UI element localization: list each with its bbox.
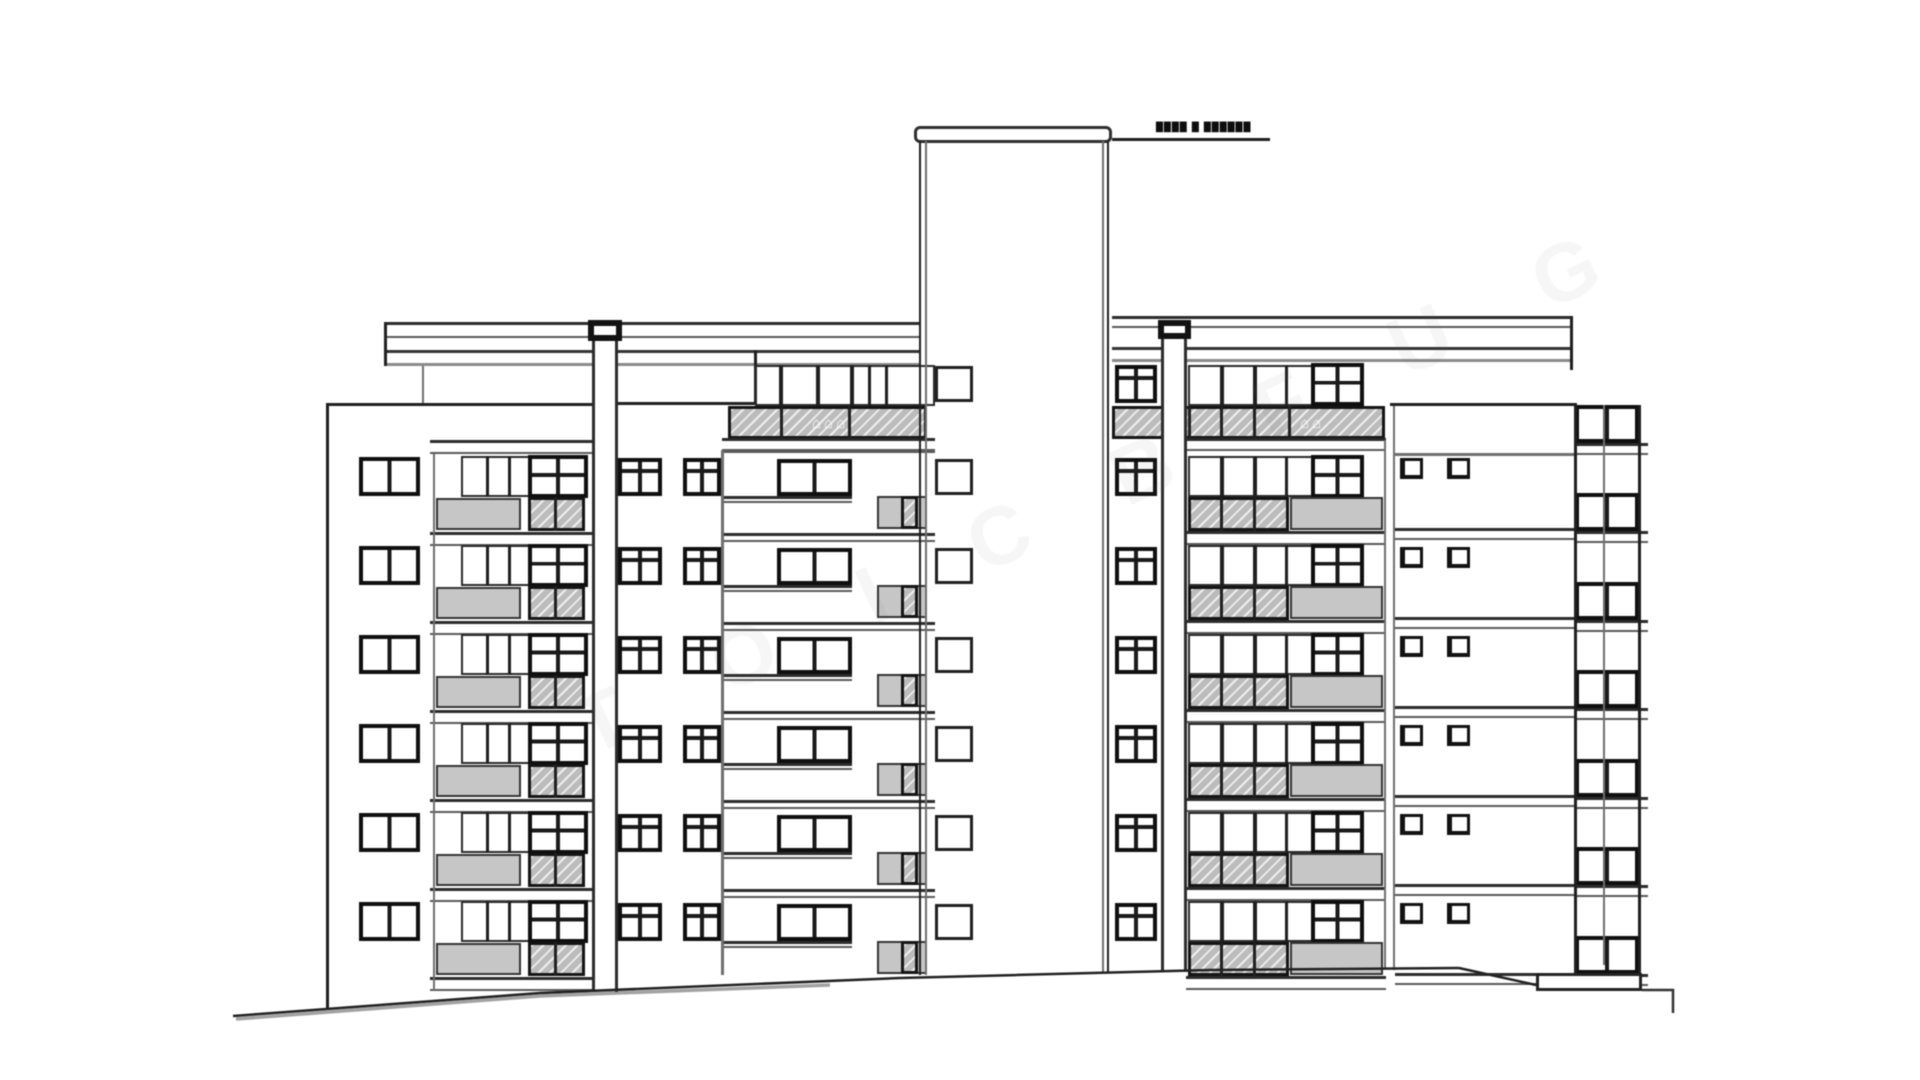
ground-line-step (1642, 990, 1673, 1013)
ground-line-main (233, 968, 1459, 1016)
elevation-drawing-page: ████ █ ██████ T O I C B F U G⌂⌂⌂⌂⌂ (0, 0, 1920, 1080)
ground-line-shadow (236, 985, 830, 1019)
ground-line (0, 0, 1920, 1080)
building-elevation-drawing: ████ █ ██████ T O I C B F U G⌂⌂⌂⌂⌂ (0, 0, 1920, 1080)
ground-line-right (1459, 968, 1536, 985)
